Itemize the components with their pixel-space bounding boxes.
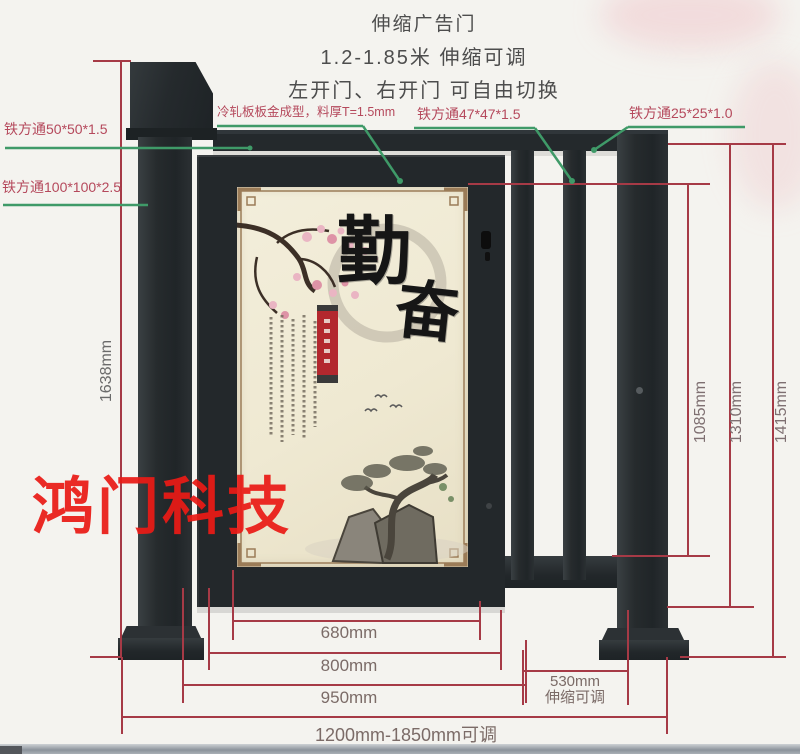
- callout-cold-rolled-panel: 冷轧板板金成型，料厚T=1.5mm: [217, 101, 395, 120]
- ground-strip: [0, 744, 800, 754]
- product-photo: 伸缩广告门 1.2-1.85米 伸缩可调 左开门、右开门 可自由切换: [0, 0, 800, 754]
- callout-steel-tube-100: 铁方通100*100*2.5: [2, 177, 121, 197]
- red-dimension-lines: [90, 61, 786, 734]
- watermark-text: 鸿门科技: [32, 456, 292, 546]
- dim-door-outer-width: 950mm: [299, 688, 399, 708]
- dim-post-height: 1415mm: [773, 367, 791, 457]
- dim-extension-note: 伸缩可调: [545, 689, 605, 706]
- dim-extension-value: 530mm: [550, 673, 600, 690]
- callout-steel-tube-47: 铁方通47*47*1.5: [417, 104, 521, 124]
- callout-steel-tube-25: 铁方通25*25*1.0: [629, 103, 733, 123]
- dim-poster-width: 680mm: [299, 623, 399, 643]
- dim-rail-height: 1310mm: [728, 367, 746, 457]
- dim-total-height: 1638mm: [98, 326, 116, 416]
- dim-extension-width: 530mm 伸缩可调: [525, 674, 625, 706]
- callout-steel-tube-50: 铁方通50*50*1.5: [4, 119, 108, 139]
- dim-opening-height: 1085mm: [692, 367, 710, 457]
- ground-strip-corner: [0, 746, 22, 754]
- dim-door-width: 800mm: [299, 656, 399, 676]
